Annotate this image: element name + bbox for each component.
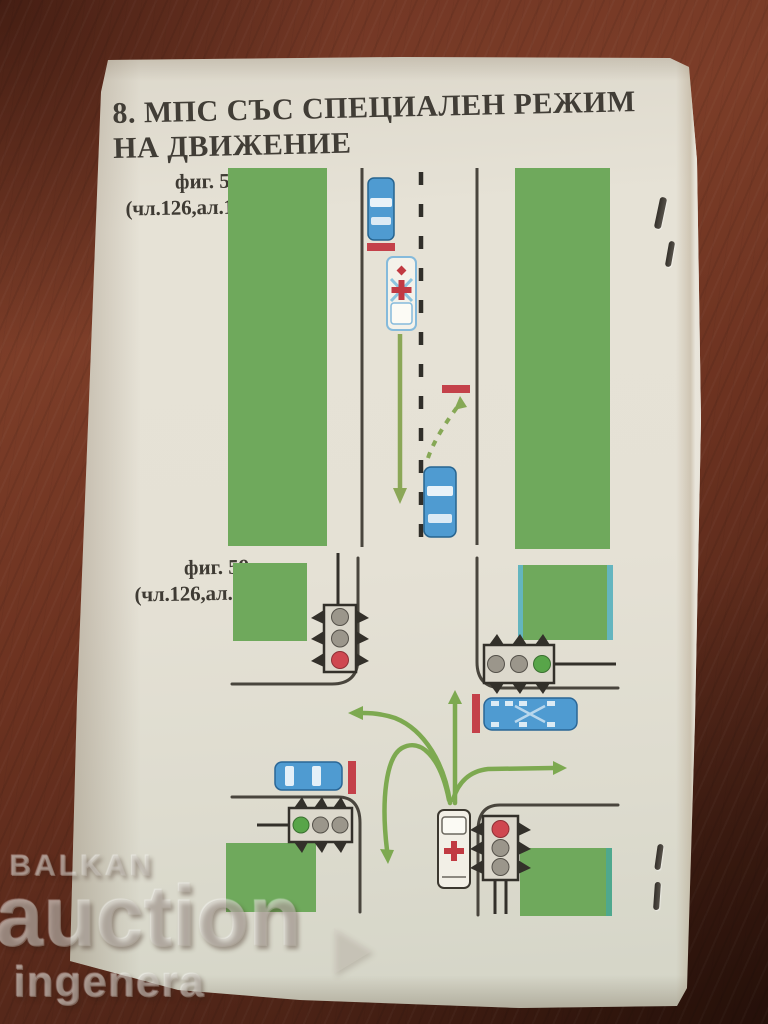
staple-mark bbox=[654, 197, 668, 230]
grass-corner-top-right bbox=[518, 565, 613, 640]
grass-strip-right bbox=[515, 168, 610, 549]
staple-mark bbox=[654, 844, 664, 871]
green-signal-lens bbox=[293, 817, 309, 833]
blue-car-icon bbox=[275, 762, 342, 790]
staple-mark bbox=[653, 882, 661, 910]
blue-car-icon-oncoming bbox=[424, 467, 456, 537]
stop-line-red bbox=[348, 761, 356, 794]
red-signal-lens bbox=[492, 821, 509, 838]
traffic-light-top-left-red bbox=[311, 553, 369, 672]
green-signal-lens bbox=[534, 656, 551, 673]
staple-mark bbox=[665, 241, 675, 268]
section-heading: 8. МПС СЪС СПЕЦИАЛЕН РЕЖИМ НА ДВИЖЕНИЕ bbox=[112, 83, 673, 166]
blue-car-icon-stopped bbox=[368, 178, 394, 240]
traffic-light-top-right-green bbox=[484, 634, 616, 694]
green-dashed-arrow-pull-aside bbox=[428, 396, 467, 458]
blue-bus-icon bbox=[484, 698, 577, 730]
grass-strip-left bbox=[228, 168, 327, 546]
grass-corner-bottom-right bbox=[520, 848, 612, 916]
ambulance-icon bbox=[438, 810, 470, 888]
ambulance-icon bbox=[387, 257, 416, 330]
stop-line-red bbox=[472, 694, 480, 733]
watermark-subtitle: ingenera bbox=[14, 958, 205, 1008]
play-triangle-icon bbox=[334, 928, 372, 974]
watermark-word: auction bbox=[0, 868, 302, 967]
red-signal-lens bbox=[332, 652, 349, 669]
photo-of-book-on-table: 8. МПС СЪС СПЕЦИАЛЕН РЕЖИМ НА ДВИЖЕНИЕ ф… bbox=[0, 0, 768, 1024]
stop-line-red bbox=[367, 243, 395, 251]
grass-corner-top-left bbox=[233, 563, 307, 641]
green-arrow-straight bbox=[393, 334, 407, 504]
figure-58-diagram bbox=[210, 160, 630, 560]
stop-line-red bbox=[442, 385, 470, 393]
